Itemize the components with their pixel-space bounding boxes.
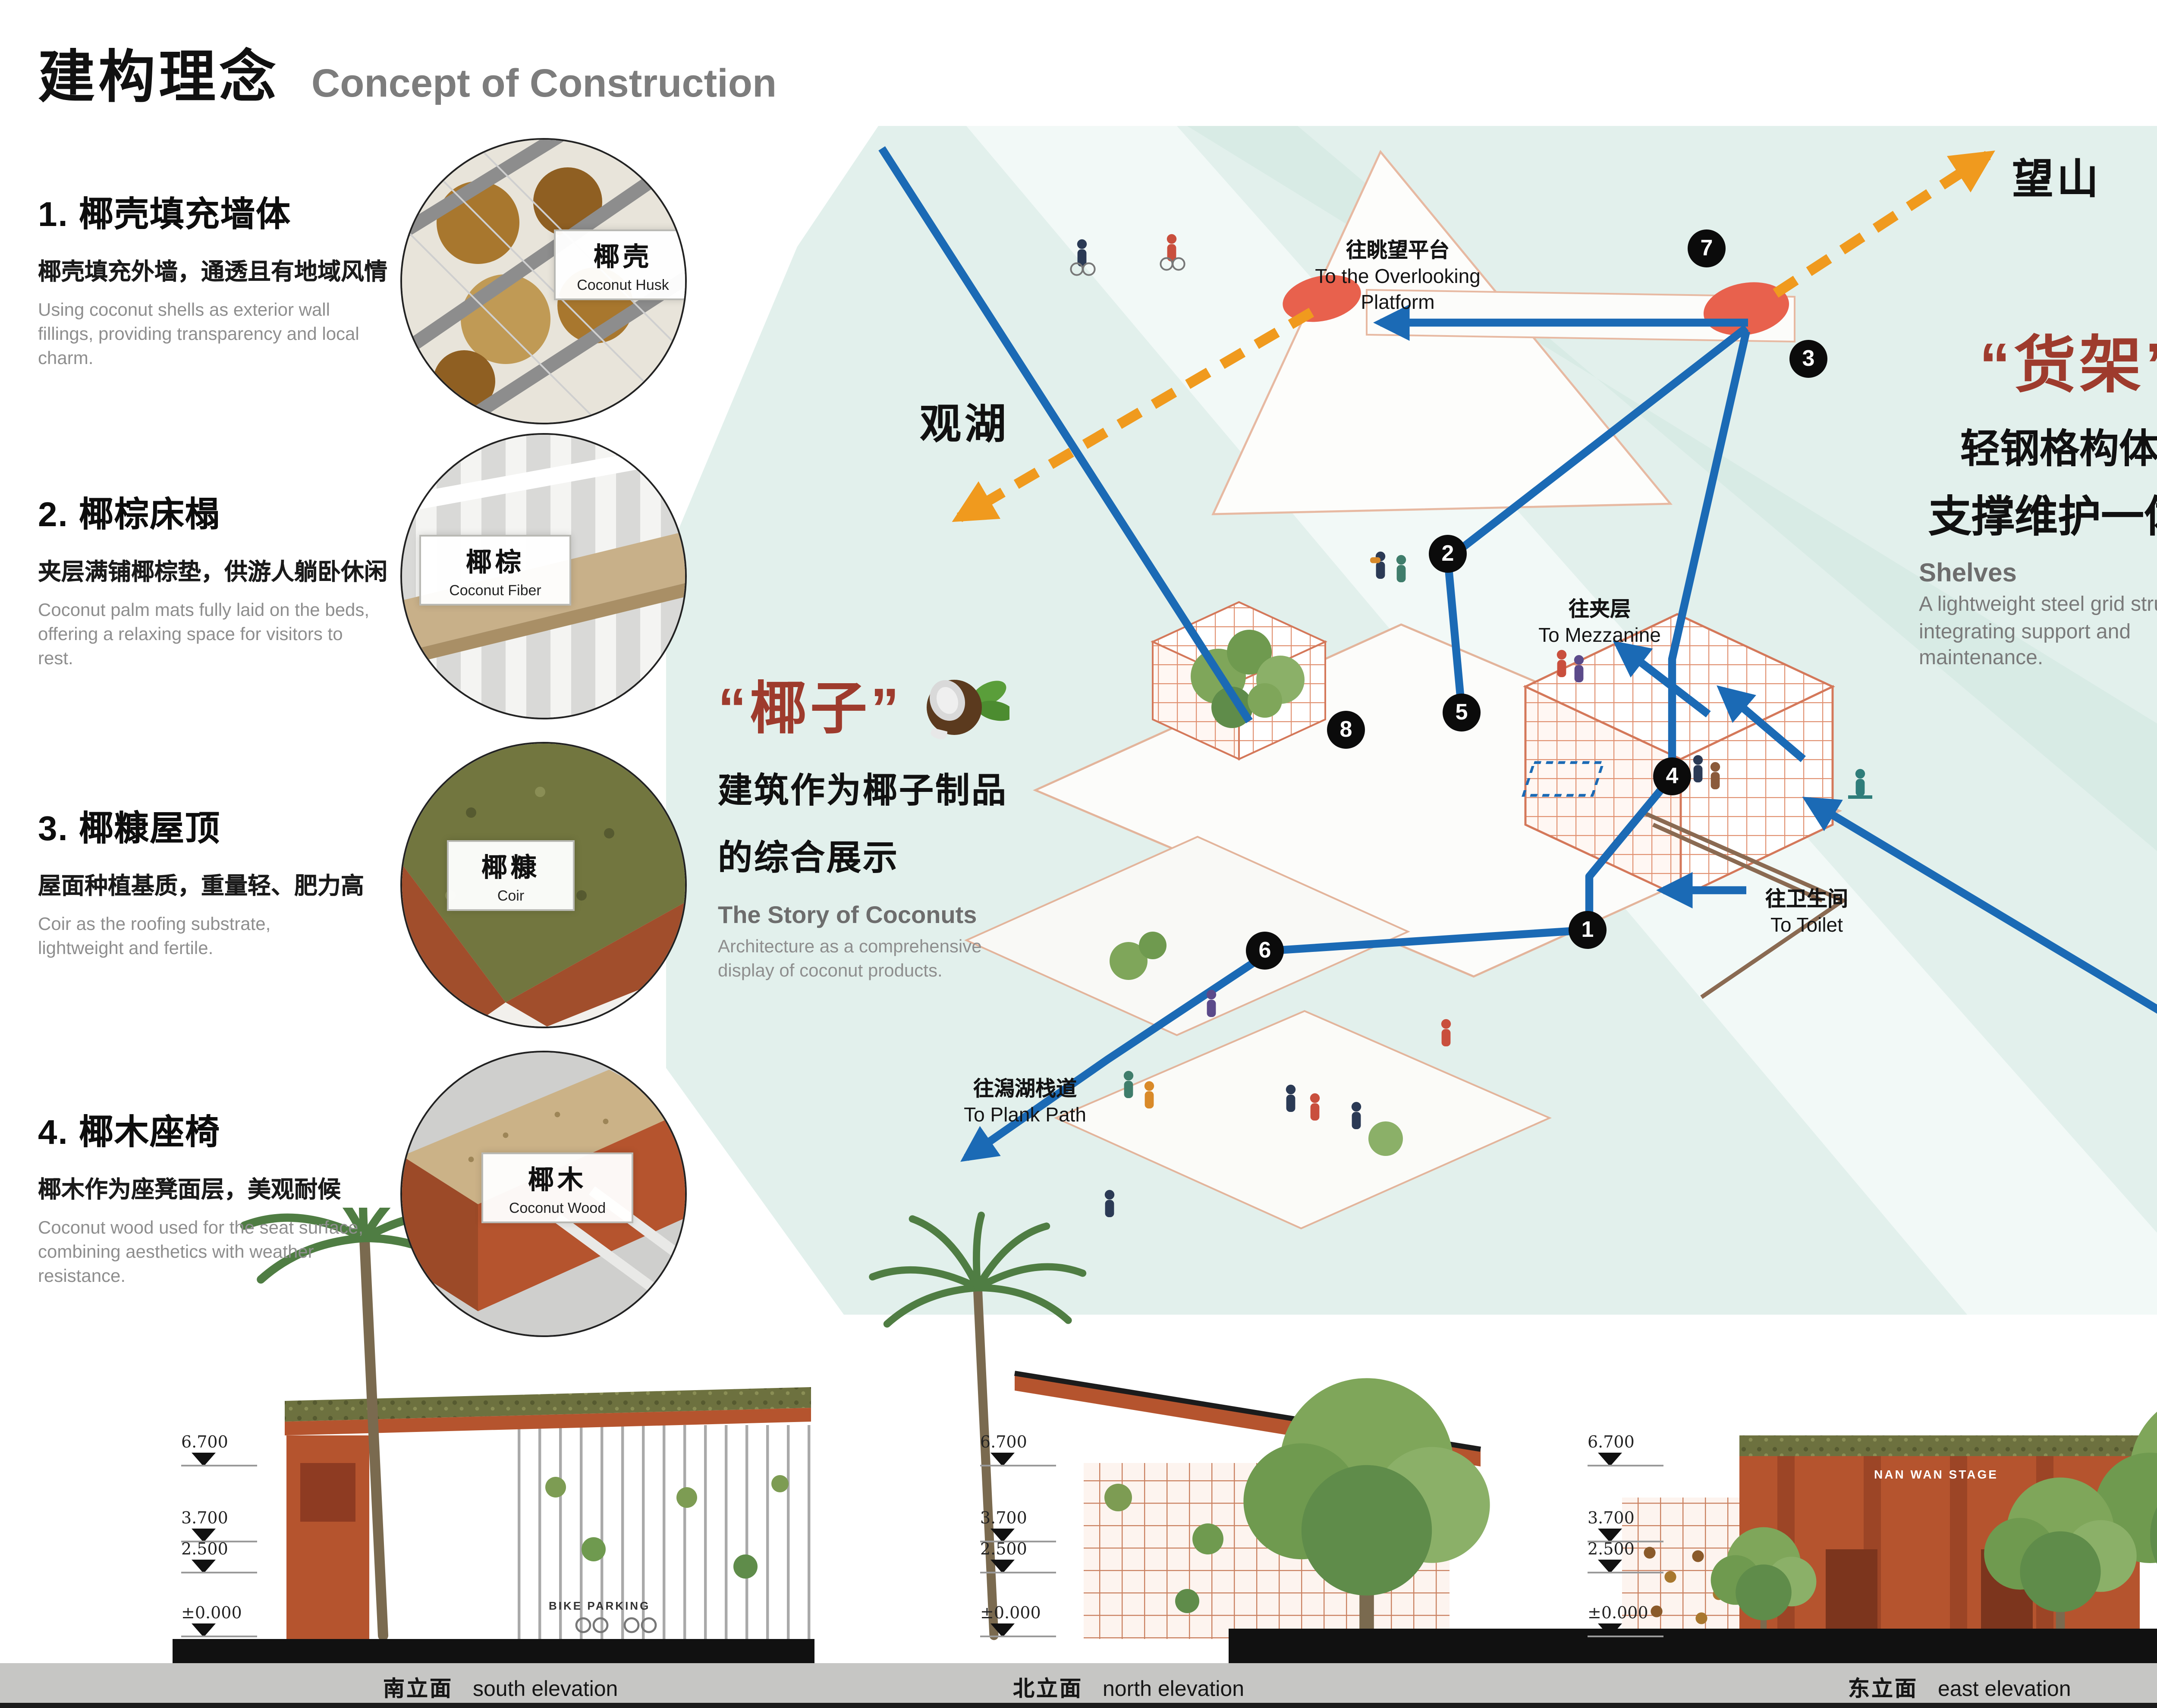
material-tag: 椰壳 Coconut Husk [554, 229, 687, 300]
poster-canvas: NAN WAN STAGE BIKE PARKING 建构理念 Concept … [0, 0, 2157, 1708]
caption-zh: 北立面 [1013, 1677, 1083, 1701]
tag-en: Coir [462, 887, 559, 904]
tag-en: Coconut Wood [497, 1199, 618, 1216]
item-subtitle: 屋面种植基质，重量轻、肥力高 [38, 866, 421, 901]
detail-photo-coir-roof: 椰糠 Coir [400, 742, 687, 1028]
level-value: ±0.000 [1588, 1604, 1663, 1623]
marker-3: 3 [1789, 340, 1827, 378]
shelves-line2: 支撑维护一体化 [1881, 483, 2157, 545]
page-subtitle: Concept of Construction [311, 60, 777, 105]
detail-photo-husk-wall: 椰壳 Coconut Husk [400, 138, 687, 424]
level-value: 6.700 [980, 1434, 1056, 1453]
marker-2: 2 [1429, 535, 1467, 573]
label-en: To Toilet [1677, 914, 1936, 939]
item-heading: 4. 椰木座椅 [38, 1104, 421, 1154]
caption-en: east elevation [1938, 1677, 2071, 1701]
caption-en: north elevation [1103, 1677, 1244, 1701]
left-item-2: 2. 椰棕床榻 夹层满铺椰棕垫，供游人躺卧休闲 Coconut palm mat… [38, 487, 421, 672]
shelves-quote: “货架” [1881, 316, 2157, 405]
caption-zh: 东立面 [1848, 1677, 1918, 1701]
label-overlook: 往眺望平台 To the Overlooking Platform [1268, 238, 1527, 317]
marker-4: 4 [1653, 757, 1691, 795]
coconut-icon [921, 666, 1010, 742]
view-label-mountain: 望山 [2012, 145, 2102, 205]
item-subtitle: 夹层满铺椰棕垫，供游人躺卧休闲 [38, 552, 421, 587]
item-subtitle: 椰壳填充外墙，通透且有地域风情 [38, 252, 421, 286]
item-desc: Coconut palm mats fully laid on the beds… [38, 599, 376, 672]
marker-5: 5 [1443, 694, 1481, 732]
east-elevation [1622, 1391, 2157, 1639]
shelves-en-desc: A lightweight steel grid structure integ… [1919, 592, 2157, 672]
label-zh: 往卫生间 [1677, 887, 1936, 914]
label-en: To Plank Path [896, 1103, 1154, 1129]
label-en: To Mezzanine [1470, 624, 1729, 650]
marker-1: 1 [1569, 911, 1607, 949]
label-en: Platform [1268, 291, 1527, 317]
material-tag: 椰糠 Coir [447, 840, 575, 911]
label-zh: 往潟湖栈道 [896, 1077, 1154, 1103]
label-zh: 往夹层 [1470, 597, 1729, 624]
coconut-quote: “椰子” [718, 662, 902, 745]
material-tag: 椰木 Coconut Wood [481, 1152, 633, 1223]
coconut-en-title: The Story of Coconuts [718, 901, 1132, 928]
label-plank-path: 往潟湖栈道 To Plank Path [896, 1077, 1154, 1129]
page-title: 建构理念 [38, 45, 280, 109]
shelves-line1: 轻钢格构体系 [1881, 416, 2157, 474]
level-value: ±0.000 [980, 1604, 1056, 1623]
label-mezzanine: 往夹层 To Mezzanine [1470, 597, 1729, 650]
label-toilet: 往卫生间 To Toilet [1677, 887, 1936, 939]
level-value: 6.700 [1588, 1434, 1663, 1453]
item-desc: Coir as the roofing substrate, lightweig… [38, 913, 297, 961]
level-value: 3.700 [980, 1510, 1056, 1529]
tag-zh: 椰壳 [569, 238, 676, 274]
tag-zh: 椰棕 [435, 543, 556, 580]
ground-bar-center [1229, 1629, 2157, 1663]
caption-en: south elevation [473, 1677, 618, 1701]
label-zh: 往眺望平台 [1268, 238, 1527, 265]
coconut-line2: 的综合展示 [718, 830, 1132, 880]
level-value: 2.500 [1588, 1541, 1663, 1560]
header: 建构理念 Concept of Construction [38, 31, 777, 114]
caption-east: 东立面 east elevation [1848, 1670, 2071, 1703]
shelves-concept-block: “货架” 轻钢格构体系 支撑维护一体化 Shelves A lightweigh… [1881, 316, 2157, 672]
left-item-3: 3. 椰糠屋顶 屋面种植基质，重量轻、肥力高 Coir as the roofi… [38, 801, 421, 961]
coconut-en-desc: Architecture as a comprehensive display … [718, 935, 1011, 984]
item-heading: 2. 椰棕床榻 [38, 487, 421, 537]
marker-8: 8 [1327, 711, 1365, 749]
coconut-line1: 建筑作为椰子制品 [718, 763, 1132, 813]
marker-7: 7 [1688, 229, 1726, 267]
item-heading: 3. 椰糠屋顶 [38, 801, 421, 851]
item-desc: Coconut wood used for the seat surface, … [38, 1216, 376, 1289]
left-item-1: 1. 椰壳填充墙体 椰壳填充外墙，通透且有地域风情 Using coconut … [38, 186, 421, 371]
detail-photo-fiber-bed: 椰棕 Coconut Fiber [400, 433, 687, 719]
level-value: 3.700 [181, 1510, 257, 1529]
item-subtitle: 椰木作为座凳面层，美观耐候 [38, 1170, 421, 1204]
item-desc: Using coconut shells as exterior wall fi… [38, 298, 376, 371]
level-value: 2.500 [181, 1541, 257, 1560]
level-value: 6.700 [181, 1434, 257, 1453]
south-bike-sign: BIKE PARKING [549, 1601, 650, 1613]
marker-6: 6 [1246, 932, 1284, 970]
detail-photo-wood-seat: 椰木 Coconut Wood [400, 1051, 687, 1337]
tag-en: Coconut Fiber [435, 581, 556, 599]
shelves-en-title: Shelves [1919, 559, 2157, 588]
label-en: To the Overlooking [1268, 265, 1527, 291]
level-value: 2.500 [980, 1541, 1056, 1560]
caption-south: 南立面 south elevation [383, 1670, 618, 1703]
level-value: ±0.000 [181, 1604, 257, 1623]
level-value: 3.700 [1588, 1510, 1663, 1529]
material-tag: 椰棕 Coconut Fiber [419, 535, 571, 606]
east-stage-sign: NAN WAN STAGE [1874, 1470, 1998, 1482]
coconut-concept-block: “椰子” 建筑作为椰子制品 的综合展示 The Story of Coconut… [718, 662, 1132, 984]
left-item-4: 4. 椰木座椅 椰木作为座凳面层，美观耐候 Coconut wood used … [38, 1104, 421, 1289]
north-elevation [873, 1215, 1490, 1639]
ground-bar-south [173, 1639, 814, 1663]
tag-en: Coconut Husk [569, 276, 676, 293]
tag-zh: 椰糠 [462, 849, 559, 885]
view-label-lake: 观湖 [920, 390, 1009, 450]
item-heading: 1. 椰壳填充墙体 [38, 186, 421, 236]
caption-zh: 南立面 [383, 1677, 453, 1701]
tag-zh: 椰木 [497, 1161, 618, 1197]
caption-north: 北立面 north elevation [1013, 1670, 1244, 1703]
